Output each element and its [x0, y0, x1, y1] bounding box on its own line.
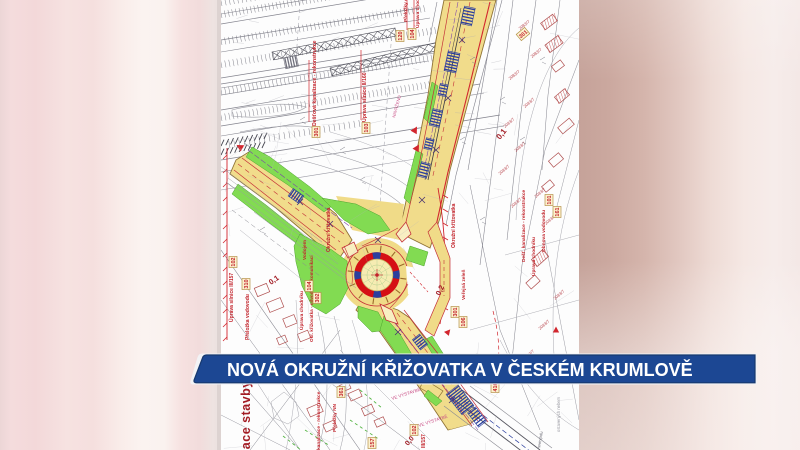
svg-text:Přeložka vodovodu: Přeložka vodovodu [245, 294, 251, 340]
svg-text:Veřejná zeleň: Veřejná zeleň [461, 270, 467, 300]
svg-text:Přeložky NN: Přeložky NN [332, 403, 338, 432]
svg-text:Vodojem: Vodojem [302, 240, 308, 260]
svg-text:kanalizace - rekonstrukce: kanalizace - rekonstrukce [316, 391, 322, 450]
svg-text:Okružní křižovatka: Okružní křižovatka [326, 207, 332, 252]
svg-text:102: 102 [412, 425, 418, 434]
svg-text:101: 101 [547, 195, 553, 204]
svg-text:III/157: III/157 [421, 434, 427, 448]
svg-text:120: 120 [398, 31, 404, 40]
svg-text:104: 104 [410, 28, 416, 38]
svg-text:Úprava silnice II/160: Úprava silnice II/160 [361, 72, 368, 122]
svg-text:310: 310 [244, 279, 250, 288]
svg-text:103: 103 [364, 123, 370, 132]
svg-text:Obnova vodovodu: Obnova vodovodu [541, 210, 547, 252]
svg-text:106: 106 [461, 317, 467, 326]
svg-text:Úprava silnice III/157: Úprava silnice III/157 [228, 273, 235, 322]
svg-text:157: 157 [370, 438, 376, 447]
svg-text:Přeložky el.vedení: Přeložky el.vedení [403, 0, 409, 22]
svg-text:104: 104 [307, 280, 313, 290]
svg-text:161: 161 [555, 207, 561, 216]
svg-text:Dešť. kanalizace - rekonstrukc: Dešť. kanalizace - rekonstrukce [521, 190, 527, 262]
svg-text:302: 302 [315, 293, 321, 302]
svg-text:Úprava chodníku: Úprava chodníku [298, 291, 305, 330]
svg-text:NOVÁ OKRUŽNÍ KŘIŽOVATKA V ČESK: NOVÁ OKRUŽNÍ KŘIŽOVATKA V ČESKÉM KRUMLOV… [227, 359, 693, 380]
svg-text:Úprava chodníku: Úprava chodníku [530, 237, 537, 276]
svg-text:Dešťová kanalizace - rekonstru: Dešťová kanalizace - rekonstrukce [312, 40, 318, 126]
svg-text:102: 102 [231, 257, 237, 266]
svg-text:Okružní křižovatka: Okružní křižovatka [451, 203, 457, 248]
svg-text:301: 301 [314, 127, 320, 136]
svg-text:301: 301 [453, 307, 459, 316]
svg-text:tuace stavby: tuace stavby [239, 380, 253, 450]
svg-text:Úprava chodníku: Úprava chodníku [414, 0, 421, 28]
svg-text:ostavených nebem: ostavených nebem [556, 396, 561, 432]
svg-text:361: 361 [339, 387, 345, 396]
